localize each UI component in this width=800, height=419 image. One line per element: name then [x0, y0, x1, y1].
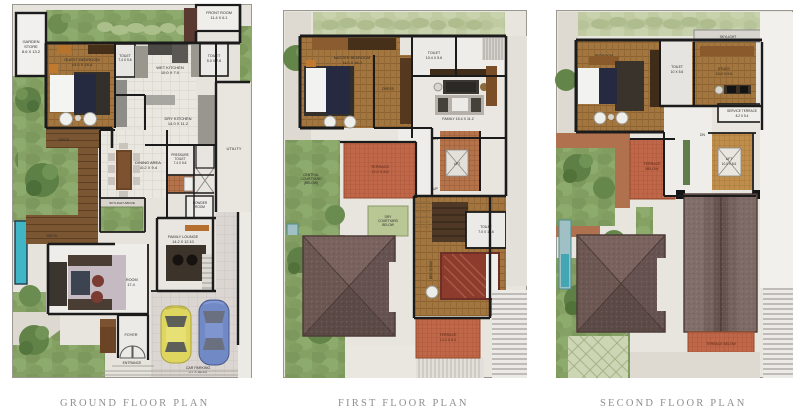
- svg-text:DRESS: DRESS: [382, 87, 394, 91]
- svg-text:FAMILY LOUNGE: FAMILY LOUNGE: [168, 235, 199, 239]
- svg-text:8.2 X 5.4: 8.2 X 5.4: [736, 114, 749, 118]
- svg-text:TOILET: TOILET: [428, 51, 441, 55]
- svg-text:10.4 X 5.6: 10.4 X 5.6: [426, 56, 442, 60]
- svg-text:DN: DN: [700, 133, 705, 137]
- svg-text:14.0 X 16.4: 14.0 X 16.4: [72, 62, 93, 67]
- svg-text:14.0 X 11.2: 14.0 X 11.2: [168, 121, 189, 126]
- svg-text:10.2 X 9.4: 10.2 X 9.4: [139, 165, 158, 170]
- svg-text:UP: UP: [433, 187, 438, 191]
- svg-text:TOILET: TOILET: [208, 54, 221, 58]
- svg-text:ENTRANCE: ENTRANCE: [123, 361, 142, 365]
- svg-text:SERVICE TERRACE: SERVICE TERRACE: [727, 109, 757, 113]
- svg-text:TERRACE BELOW: TERRACE BELOW: [706, 342, 736, 346]
- svg-text:12.0 X 8.6: 12.0 X 8.6: [371, 170, 388, 174]
- svg-text:TERRACE: TERRACE: [439, 333, 457, 337]
- svg-text:10.0 X 7.0: 10.0 X 7.0: [161, 70, 180, 75]
- svg-text:10 X 5.6: 10 X 5.6: [671, 70, 684, 74]
- svg-text:FOYER: FOYER: [124, 333, 137, 337]
- svg-text:FRONT ROOM: FRONT ROOM: [206, 11, 232, 15]
- svg-text:BELOW: BELOW: [382, 223, 394, 227]
- svg-text:DECK: DECK: [58, 137, 69, 142]
- svg-text:UTILITY: UTILITY: [227, 146, 242, 151]
- svg-text:MASTER BEDROOM: MASTER BEDROOM: [334, 56, 371, 60]
- svg-text:ROOM: ROOM: [195, 205, 205, 209]
- svg-text:DECK: DECK: [46, 233, 57, 238]
- svg-text:10.0 X 8.6: 10.0 X 8.6: [722, 162, 737, 166]
- svg-text:LIFT: LIFT: [454, 162, 461, 166]
- svg-text:(BELOW): (BELOW): [304, 181, 319, 185]
- svg-text:10.0 X 9.6: 10.0 X 9.6: [716, 72, 732, 76]
- svg-text:TERRACE: TERRACE: [643, 162, 661, 166]
- svg-text:14.4 X 8.4: 14.4 X 8.4: [440, 338, 456, 342]
- svg-text:SKYLIGHT: SKYLIGHT: [720, 35, 737, 39]
- svg-text:STUDY: STUDY: [718, 67, 731, 71]
- svg-text:14.0 X 16.0: 14.0 X 16.0: [342, 61, 361, 65]
- svg-text:BED ROOM: BED ROOM: [429, 261, 433, 280]
- svg-text:TERRACE: TERRACE: [371, 165, 390, 169]
- svg-text:14.2 X 12.10: 14.2 X 12.10: [172, 240, 194, 244]
- svg-text:7.0 X 10.6: 7.0 X 10.6: [478, 230, 494, 234]
- svg-text:TOILET: TOILET: [671, 65, 683, 69]
- svg-text:7.4 X 5.6: 7.4 X 5.6: [174, 161, 187, 165]
- svg-text:11.4 X 6.1: 11.4 X 6.1: [210, 16, 227, 20]
- svg-text:5.0 X 7.6: 5.0 X 7.6: [207, 59, 221, 63]
- svg-text:SKYLIGHT ABOVE: SKYLIGHT ABOVE: [109, 201, 135, 205]
- svg-text:LIFT: LIFT: [726, 157, 733, 161]
- svg-text:FAMILY 15.4 X 11.2: FAMILY 15.4 X 11.2: [442, 117, 474, 121]
- svg-text:8.6 X 13.2: 8.6 X 13.2: [22, 49, 41, 54]
- svg-text:BELOW: BELOW: [646, 167, 660, 171]
- svg-text:7.4 X 5.6: 7.4 X 5.6: [118, 58, 131, 62]
